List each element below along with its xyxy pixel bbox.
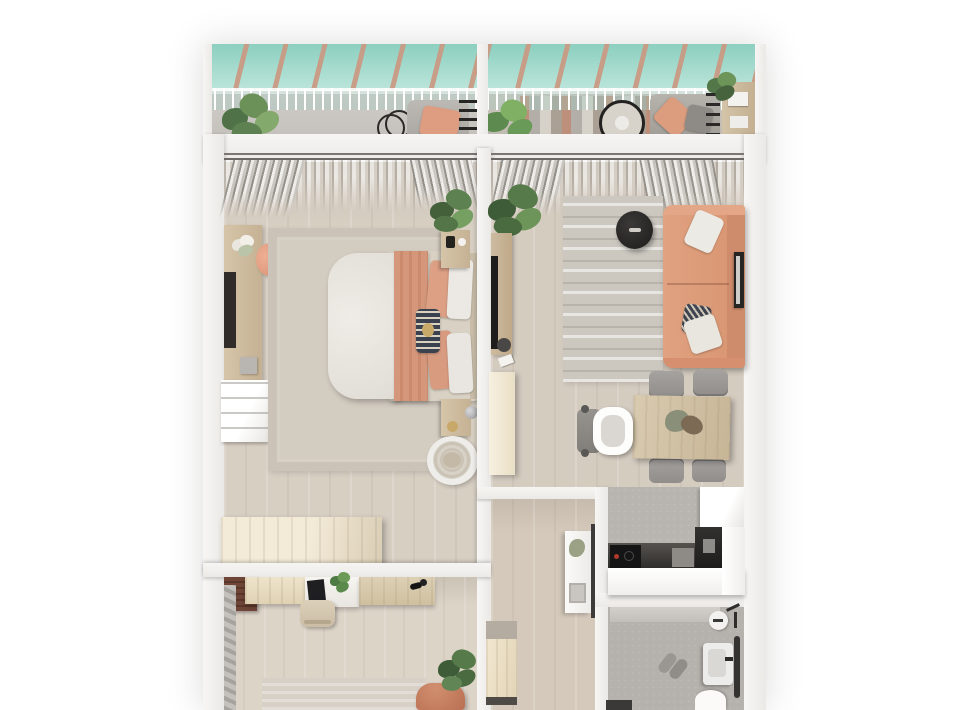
sideboard (221, 517, 382, 565)
floor-item (606, 700, 632, 710)
basket-chair (427, 436, 478, 485)
hall-console (565, 531, 591, 613)
oven-tower (695, 527, 723, 570)
desk-plant (328, 570, 352, 596)
tall-cabinet (489, 372, 515, 475)
toilet (695, 690, 726, 710)
vanity-mirror (224, 272, 236, 348)
bath-shelf (610, 607, 720, 622)
duvet (328, 253, 402, 399)
dining-chair (649, 371, 684, 398)
tv (491, 256, 498, 349)
bedside-plant (426, 186, 476, 238)
flower-vase (230, 233, 258, 261)
bathroom-top-wall (595, 593, 744, 607)
balcony-left (205, 44, 478, 148)
white-dresser (221, 380, 268, 442)
artwork (569, 583, 586, 603)
towel-rail (734, 636, 740, 698)
salmon-sofa (663, 205, 745, 368)
speaker (497, 338, 511, 352)
floor-plan-scene (0, 0, 960, 710)
slippers (660, 648, 692, 680)
white-pillow (446, 332, 473, 393)
cutting-board (672, 548, 694, 567)
glass-roof (205, 44, 478, 90)
cooktop (610, 545, 641, 568)
double-bed (328, 251, 478, 401)
white-counter-right (722, 527, 745, 595)
door-frame (591, 524, 595, 618)
decor-plant (569, 539, 585, 557)
coffee-table (616, 211, 653, 249)
wall-art-frame (734, 252, 744, 308)
bathroom-sink (703, 643, 733, 685)
desk-chair (300, 600, 335, 627)
desk-lamp (410, 579, 428, 593)
balcony-right (487, 44, 763, 148)
balcony-frame-right (755, 44, 766, 148)
living-plant (486, 181, 544, 241)
hallway-top-wall (477, 487, 608, 499)
small-plant (705, 70, 741, 108)
corner-plant (434, 646, 478, 694)
high-chair (577, 405, 635, 457)
dining-table (632, 395, 730, 460)
second-room-rug (262, 678, 426, 710)
balcony-divider-wall (477, 44, 488, 148)
dining-chair (692, 459, 726, 482)
glass-panel (224, 585, 236, 710)
outer-wall-right (744, 134, 766, 710)
balcony-frame-left (203, 44, 212, 148)
dining-chair (649, 458, 684, 483)
shower-set (724, 604, 744, 630)
curtain-pleat (219, 160, 305, 218)
faucet (725, 657, 733, 661)
shoe-bench (486, 621, 517, 705)
dining-chair (693, 370, 728, 396)
fridge (700, 487, 744, 527)
wall-switch-box (240, 357, 257, 374)
